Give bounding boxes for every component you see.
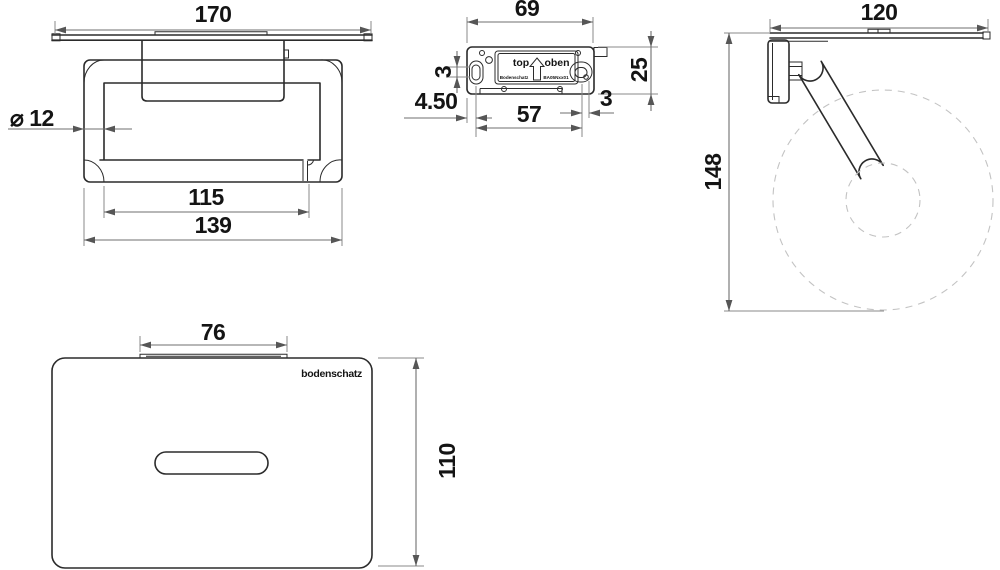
dim-hole-distance: 57 (476, 84, 582, 137)
slot-right (570, 62, 592, 82)
side-view: 120 148 (700, 0, 993, 311)
paper-roll-core-circle (846, 163, 920, 237)
dim-label-diameter: ⌀ 12 (10, 105, 54, 131)
paper-roll-outline-circle (773, 90, 993, 310)
dim-label-139: 139 (195, 212, 232, 238)
dim-bracket-width: 76 (140, 319, 287, 352)
slot-left (470, 61, 484, 84)
shelf-side-profile (770, 29, 990, 41)
plate-side-tab (594, 48, 607, 57)
mounting-plate-outline (467, 47, 607, 94)
dim-tube-diameter: ⌀ 12 (8, 105, 132, 132)
dim-depth: 120 (770, 0, 988, 32)
dim-label-57: 57 (517, 101, 542, 127)
shelf-top-outline (52, 358, 372, 568)
dim-label-148: 148 (700, 153, 726, 191)
technical-drawing: 170 ⌀ 12 115 139 (0, 0, 1000, 570)
dim-label-69: 69 (515, 0, 540, 21)
dim-label-170: 170 (195, 1, 232, 27)
mounting-plate-view: top oben Bodenschatz BA05Nxx01 69 25 (404, 0, 658, 137)
dim-label-3-left: 3 (430, 66, 456, 78)
shelf-profile (52, 32, 372, 41)
ring-hinge-slot (303, 161, 314, 182)
paper-slot (155, 452, 268, 474)
dim-label-120: 120 (861, 0, 898, 25)
dim-label-76: 76 (201, 319, 226, 345)
dim-shelf-depth: 110 (378, 358, 460, 566)
brand-logo: bodenschatz (301, 368, 362, 380)
holder-arm (799, 61, 883, 178)
dim-label-115: 115 (188, 184, 224, 210)
front-view: 170 ⌀ 12 115 139 (8, 1, 372, 246)
label-oben: oben (544, 57, 569, 69)
holder-ring (84, 60, 342, 182)
dim-label-3-right: 3 (600, 85, 612, 111)
dim-hole-offset: 3 (560, 81, 614, 118)
wall-plate-side (768, 40, 789, 103)
dim-label-25: 25 (626, 57, 652, 82)
orientation-label: top oben Bodenschatz BA05Nxx01 (495, 51, 578, 84)
dim-label-450: 4.50 (415, 88, 458, 114)
dim-plate-width: 69 (467, 0, 593, 43)
dim-label-110: 110 (434, 443, 460, 479)
mounting-bracket (142, 41, 289, 102)
dim-slot-play: 3 (430, 51, 470, 93)
dim-front-width: 170 (55, 1, 371, 34)
top-view: bodenschatz 76 110 (52, 319, 460, 568)
label-small-brand: Bodenschatz (500, 75, 529, 80)
drawing-canvas: 170 ⌀ 12 115 139 (0, 0, 1000, 570)
label-small-part: BA05Nxx01 (543, 75, 569, 80)
up-arrow-icon (530, 58, 544, 80)
label-top: top (513, 57, 529, 69)
